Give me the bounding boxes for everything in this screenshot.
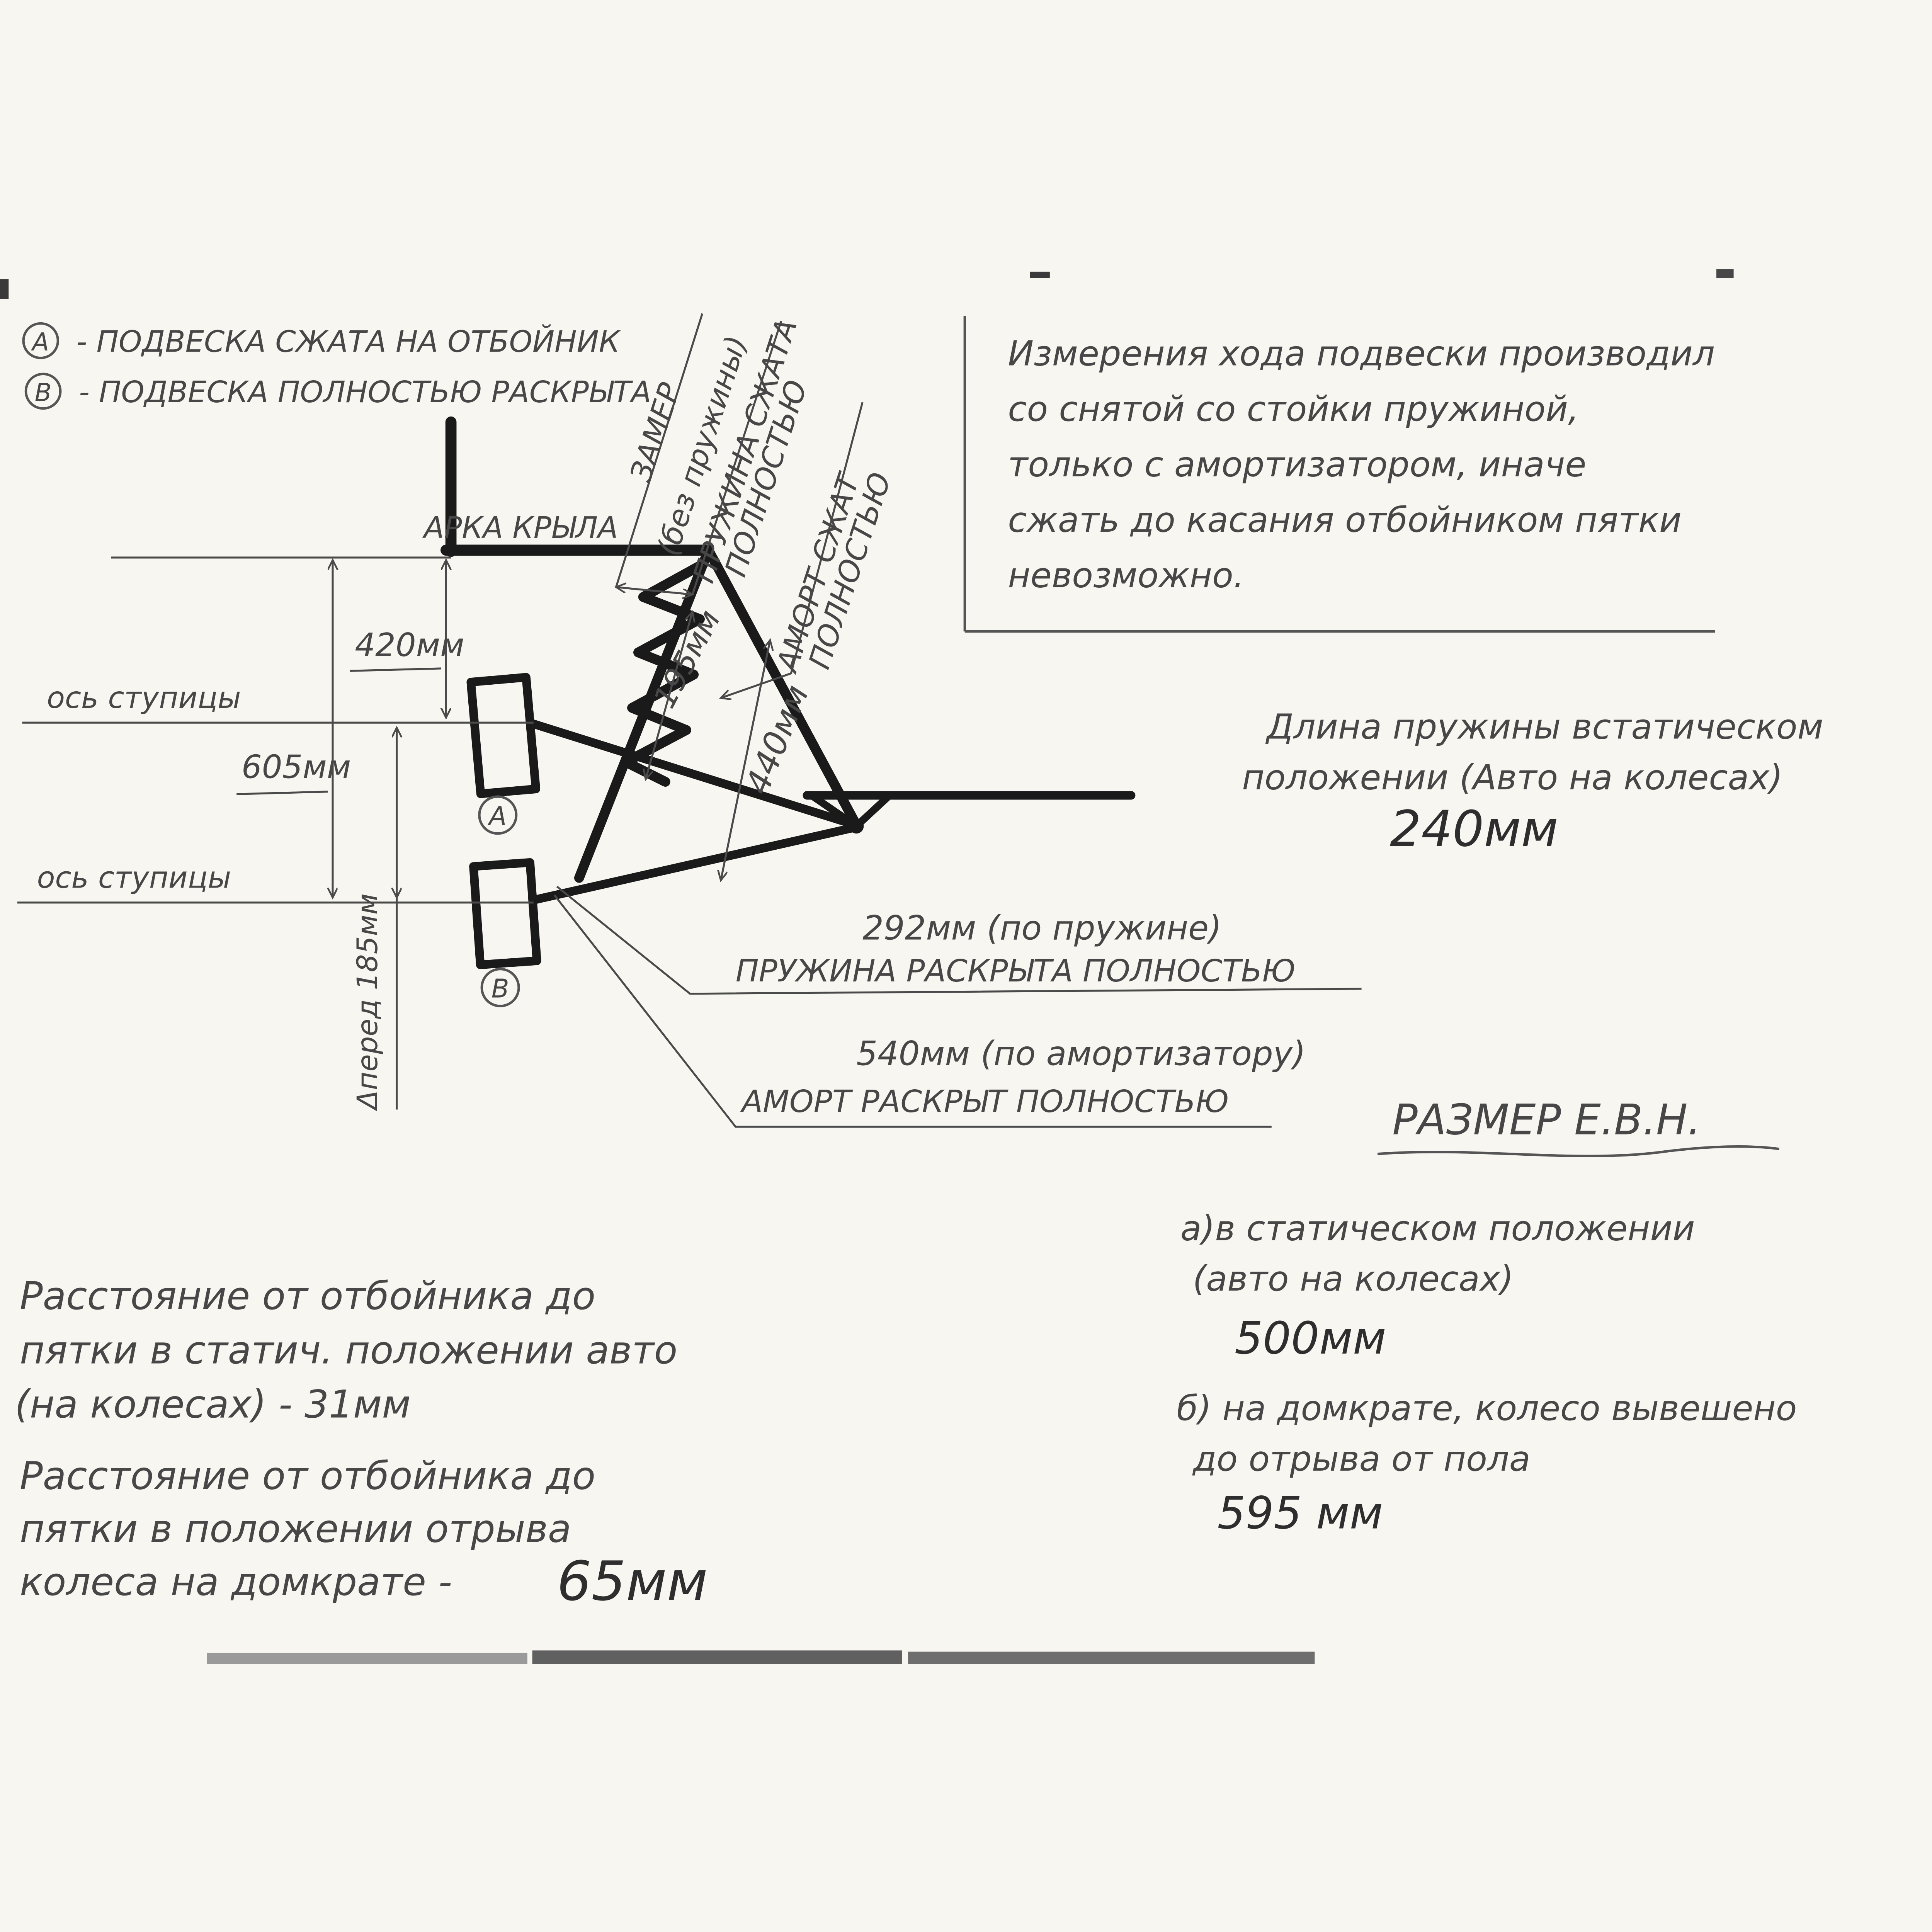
size-evn-a-line-1: а)в статическом положении	[1180, 1209, 1695, 1249]
note-line-5: невозможно.	[1008, 555, 1244, 595]
hub-axis-label-top: ось ступицы	[47, 681, 241, 715]
scan-artifact-strip-1	[207, 1653, 527, 1664]
note-line-4: сжать до касания отбойником пятки	[1008, 500, 1682, 540]
note-jack-value: 65мм	[557, 1550, 707, 1613]
wheel-b-letter: В	[492, 973, 509, 1003]
size-evn-b-line-2: до отрыва от пола	[1192, 1439, 1531, 1479]
shock-open-value: 540мм (по амортизатору)	[856, 1035, 1306, 1073]
scanned-suspension-sketch: А - ПОДВЕСКА СЖАТА НА ОТБОЙНИК В - ПОДВЕ…	[0, 0, 1932, 1932]
dim-label-travel: Δперед 185мм	[351, 893, 384, 1112]
spring-open-caption: ПРУЖИНА РАСКРЫТА ПОЛНОСТЬЮ	[736, 953, 1296, 989]
note-line-1: Измерения хода подвески производил	[1008, 333, 1715, 374]
note-line-2: со снятой со стойки пружиной,	[1008, 389, 1579, 429]
note-static-line-3: (на колесах) - 31мм	[15, 1383, 411, 1427]
size-evn-a-line-2: (авто на колесах)	[1193, 1259, 1514, 1299]
scan-artifact-strip-3	[908, 1652, 1315, 1664]
size-evn-b-line-1: б) на домкрате, колесо вывешено	[1177, 1388, 1797, 1429]
scan-speck-1	[1030, 272, 1050, 278]
size-evn-a-value: 500мм	[1235, 1313, 1386, 1364]
note-jack-line-3: колеса на домкрате -	[20, 1560, 452, 1604]
size-evn-b-value: 595 мм	[1218, 1488, 1383, 1539]
dim-label-420: 420мм	[355, 626, 464, 664]
arch-label: АРКА КРЫЛА	[422, 511, 618, 545]
spring-open-value: 292мм (по пружине)	[862, 909, 1222, 947]
size-evn-title: РАЗМЕР Е.В.Н.	[1392, 1095, 1701, 1144]
wheel-a-letter: А	[487, 801, 507, 831]
legend-b-letter: В	[35, 379, 52, 407]
hub-axis-label-bottom: ось ступицы	[37, 861, 231, 895]
note-jack-line-2: пятки в положении отрыва	[20, 1507, 571, 1551]
note-jack-line-1: Расстояние от отбойника до	[20, 1454, 595, 1498]
shock-open-caption: АМОРТ РАСКРЫТ ПОЛНОСТЬЮ	[740, 1083, 1229, 1119]
scan-artifact-strip-2	[532, 1650, 902, 1664]
scan-speck-2	[1716, 269, 1734, 278]
sketch-canvas: А - ПОДВЕСКА СЖАТА НА ОТБОЙНИК В - ПОДВЕ…	[0, 0, 1932, 1932]
note-static-line-1: Расстояние от отбойника до	[20, 1274, 595, 1318]
spring-static-line-1: Длина пружины встатическом	[1265, 707, 1823, 747]
note-static-line-2: пятки в статич. положении авто	[20, 1328, 677, 1372]
scan-speck-3	[0, 279, 9, 299]
note-line-3: только с амортизатором, иначе	[1008, 444, 1586, 485]
dim-label-605: 605мм	[241, 748, 351, 786]
spring-static-value: 240мм	[1390, 801, 1558, 858]
legend-a-text: - ПОДВЕСКА СЖАТА НА ОТБОЙНИК	[77, 324, 621, 359]
legend-b-text: - ПОДВЕСКА ПОЛНОСТЬЮ РАСКРЫТА	[79, 375, 651, 410]
spring-static-line-2: положении (Авто на колесах)	[1242, 757, 1783, 798]
legend-a-letter: А	[31, 328, 49, 357]
